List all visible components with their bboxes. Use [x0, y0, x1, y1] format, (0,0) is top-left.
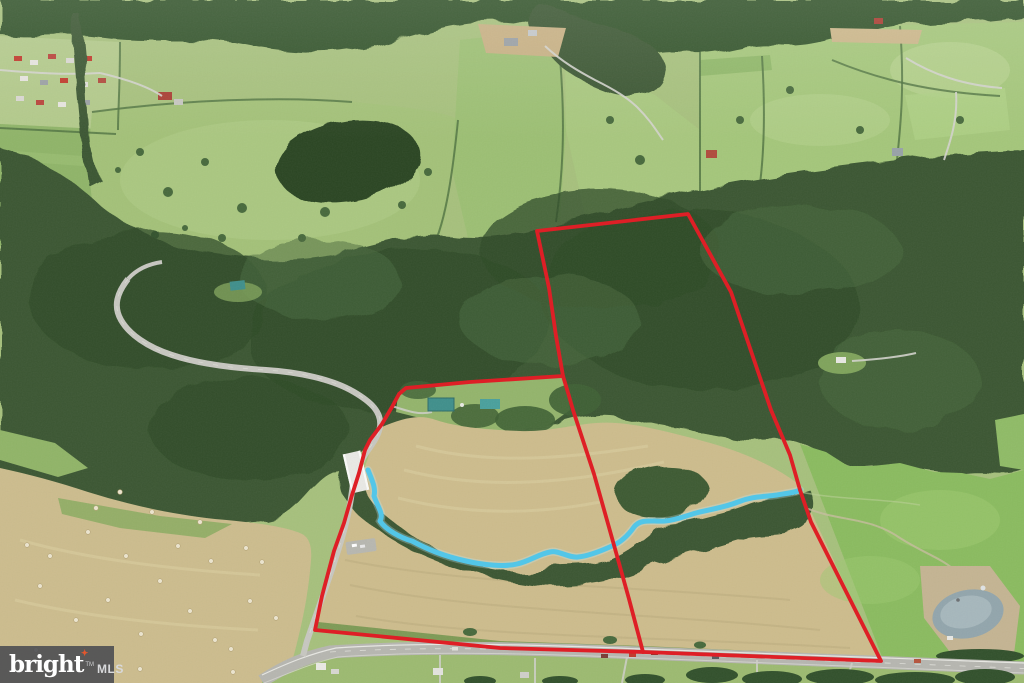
watermark-trademark: TM — [85, 662, 94, 668]
landscape-canvas — [0, 0, 1024, 683]
watermark-suffix: MLS — [97, 662, 124, 676]
photo-grain — [0, 0, 1024, 683]
watermark-spark-icon: ✦ — [81, 650, 88, 659]
aerial-property-photo: bright✦ TM MLS — [0, 0, 1024, 683]
watermark-brightmls: bright✦ TM MLS — [0, 646, 114, 683]
watermark-brand: bright✦ — [9, 653, 83, 676]
watermark-brand-text: bright — [9, 651, 83, 678]
